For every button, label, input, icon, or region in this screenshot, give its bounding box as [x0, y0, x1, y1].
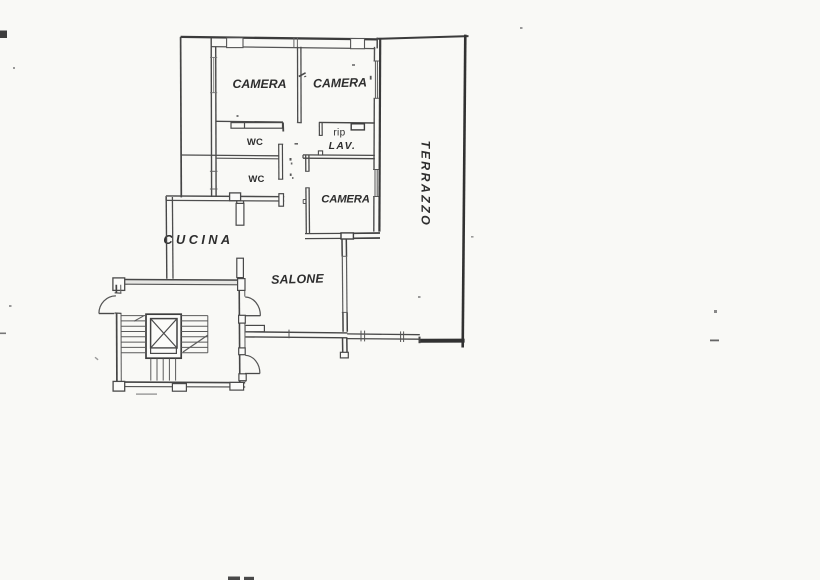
svg-text:SALONE: SALONE: [271, 271, 325, 286]
svg-text:LAV.: LAV.: [329, 141, 357, 152]
svg-text:CUCINA: CUCINA: [163, 232, 233, 247]
svg-text:CAMERA: CAMERA: [321, 193, 369, 205]
svg-text:WC: WC: [248, 174, 264, 185]
svg-text:TERRAZZO: TERRAZZO: [419, 141, 433, 228]
svg-text:CAMERA: CAMERA: [233, 77, 287, 91]
svg-text:WC: WC: [247, 137, 263, 148]
svg-text:rip: rip: [333, 128, 345, 139]
svg-text:CAMERA: CAMERA: [313, 75, 367, 90]
